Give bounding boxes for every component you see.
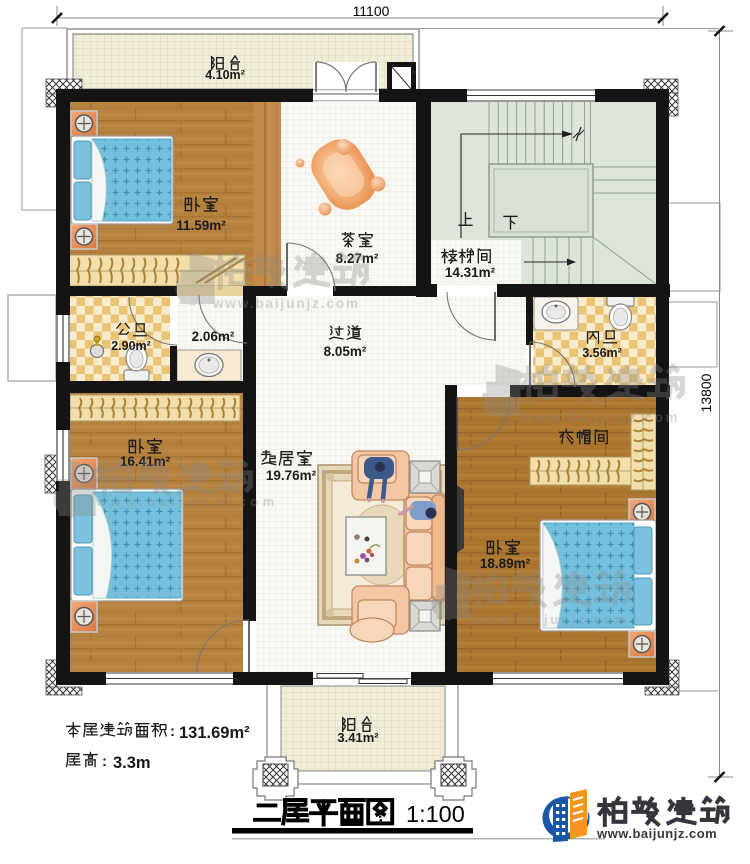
svg-text:www.baijunjz.com: www.baijunjz.com [212, 296, 360, 311]
svg-text:19.76m²: 19.76m² [266, 468, 317, 483]
svg-text:2.90m²: 2.90m² [111, 339, 151, 353]
svg-text::: : [102, 753, 107, 770]
svg-text:131.69m²: 131.69m² [179, 724, 250, 742]
svg-text:8.05m²: 8.05m² [324, 344, 367, 359]
svg-text:3.3m: 3.3m [113, 754, 151, 772]
svg-text::: : [170, 723, 175, 740]
svg-text:13800: 13800 [698, 373, 714, 412]
svg-text:2.06m²: 2.06m² [192, 329, 235, 344]
svg-text:11100: 11100 [353, 3, 390, 19]
svg-text:3.41m²: 3.41m² [337, 730, 379, 745]
svg-text:www.baijunjz.com: www.baijunjz.com [596, 826, 717, 841]
svg-text:18.89m²: 18.89m² [480, 556, 531, 571]
svg-text:1:100: 1:100 [406, 801, 465, 827]
svg-text:3.56m²: 3.56m² [582, 346, 622, 360]
svg-text:www.baijunjz.com: www.baijunjz.com [521, 410, 680, 425]
svg-text:www.baijunjz.com: www.baijunjz.com [95, 494, 279, 509]
svg-text:4.10m²: 4.10m² [205, 68, 245, 82]
svg-text:www.baijunjz.com: www.baijunjz.com [471, 612, 629, 627]
svg-text:11.59m²: 11.59m² [176, 218, 226, 233]
svg-text:14.31m²: 14.31m² [445, 265, 496, 280]
